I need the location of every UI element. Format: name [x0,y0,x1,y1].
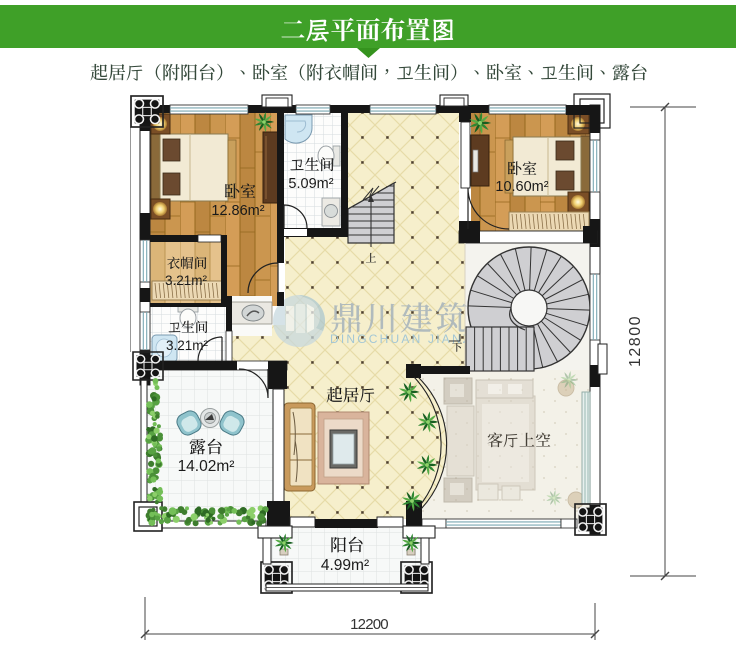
svg-text:3.21m²: 3.21m² [165,273,208,288]
svg-text:4.99m²: 4.99m² [321,557,369,574]
svg-text:12.86m²: 12.86m² [211,203,264,219]
svg-text:5.09m²: 5.09m² [288,176,333,192]
svg-text:12800: 12800 [627,315,644,367]
svg-text:12200: 12200 [350,616,388,633]
svg-text:14.02m²: 14.02m² [178,458,235,475]
svg-text:10.60m²: 10.60m² [495,179,548,195]
svg-text:3.21m²: 3.21m² [166,338,209,353]
